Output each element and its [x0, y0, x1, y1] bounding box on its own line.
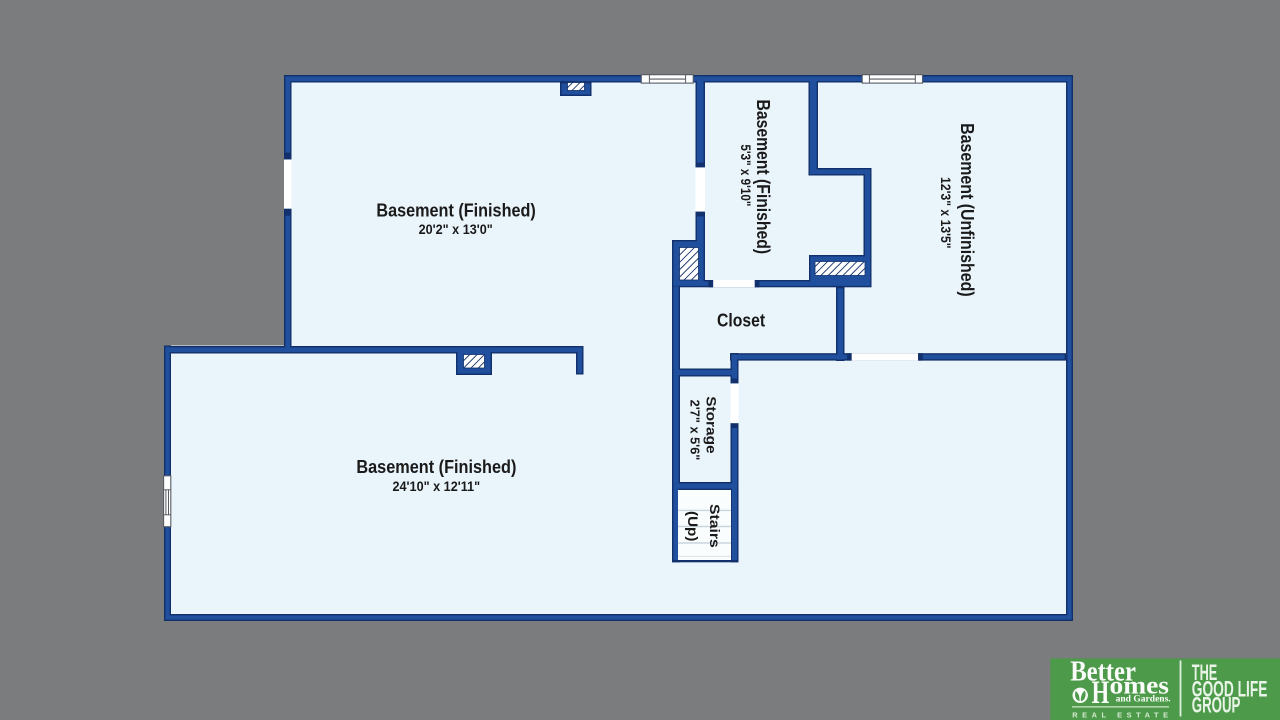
svg-text:Stairs: Stairs [707, 504, 723, 548]
svg-text:24'10" x 12'11": 24'10" x 12'11" [392, 478, 480, 494]
svg-text:and Gardens.: and Gardens. [1116, 694, 1171, 704]
svg-text:2'7" x 5'6": 2'7" x 5'6" [687, 400, 701, 461]
svg-text:GROUP: GROUP [1192, 692, 1241, 717]
svg-text:Basement (Finished): Basement (Finished) [356, 456, 516, 477]
svg-text:Basement (Finished): Basement (Finished) [376, 200, 535, 221]
svg-text:Basement (Unfinished): Basement (Unfinished) [957, 123, 978, 297]
svg-text:12'3" x 13'5": 12'3" x 13'5" [938, 177, 954, 249]
svg-text:20'2" x 13'0": 20'2" x 13'0" [419, 221, 493, 237]
svg-text:Closet: Closet [717, 310, 765, 331]
svg-text:Basement (Finished): Basement (Finished) [753, 100, 774, 255]
svg-text:H: H [1092, 675, 1110, 711]
svg-text:(Up): (Up) [685, 511, 701, 541]
svg-text:REAL ESTATE: REAL ESTATE [1072, 710, 1168, 719]
svg-text:Storage: Storage [704, 396, 720, 454]
svg-text:5'3" x 9'10": 5'3" x 9'10" [738, 144, 754, 206]
